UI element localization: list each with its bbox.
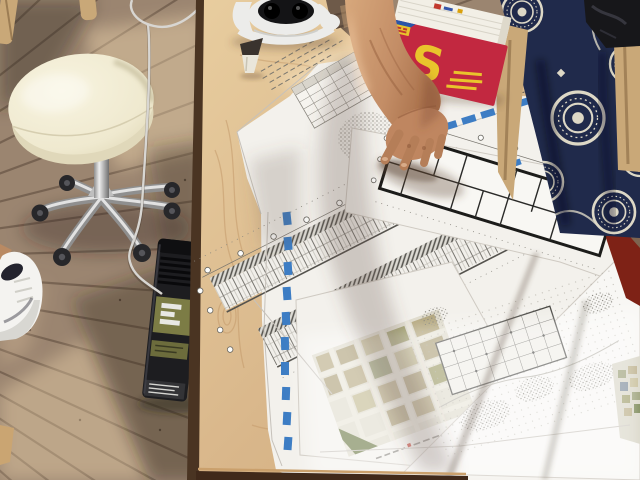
photo-scene: S (0, 0, 640, 480)
paper-sunlight (300, 312, 640, 480)
fingernail (382, 157, 388, 161)
scene-canvas: S (0, 0, 640, 480)
